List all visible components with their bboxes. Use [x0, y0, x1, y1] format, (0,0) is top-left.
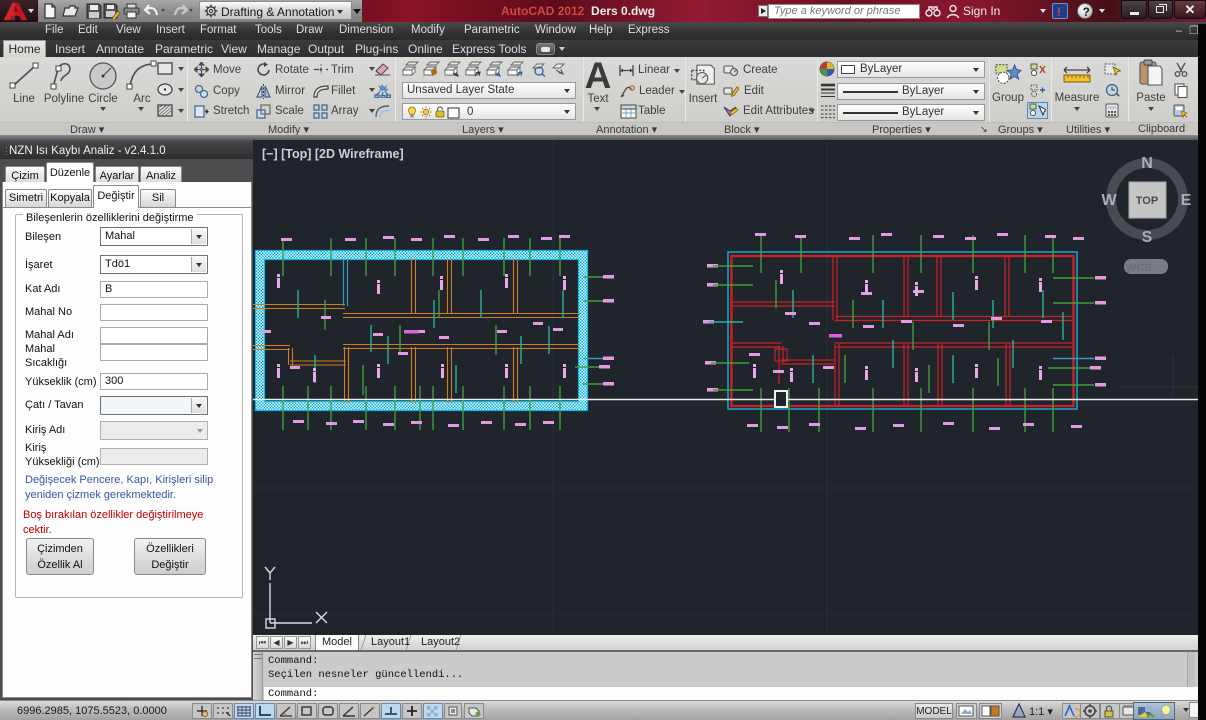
svg-text:S: S	[1142, 229, 1153, 246]
svg-text:E: E	[1181, 192, 1192, 209]
svg-text:WCS: WCS	[1126, 262, 1152, 274]
svg-text:[−] [Top] [2D Wireframe]: [−] [Top] [2D Wireframe]	[262, 147, 404, 161]
svg-text:TOP: TOP	[1136, 195, 1158, 207]
svg-text:W: W	[1101, 192, 1117, 209]
svg-text:N: N	[1141, 155, 1153, 172]
